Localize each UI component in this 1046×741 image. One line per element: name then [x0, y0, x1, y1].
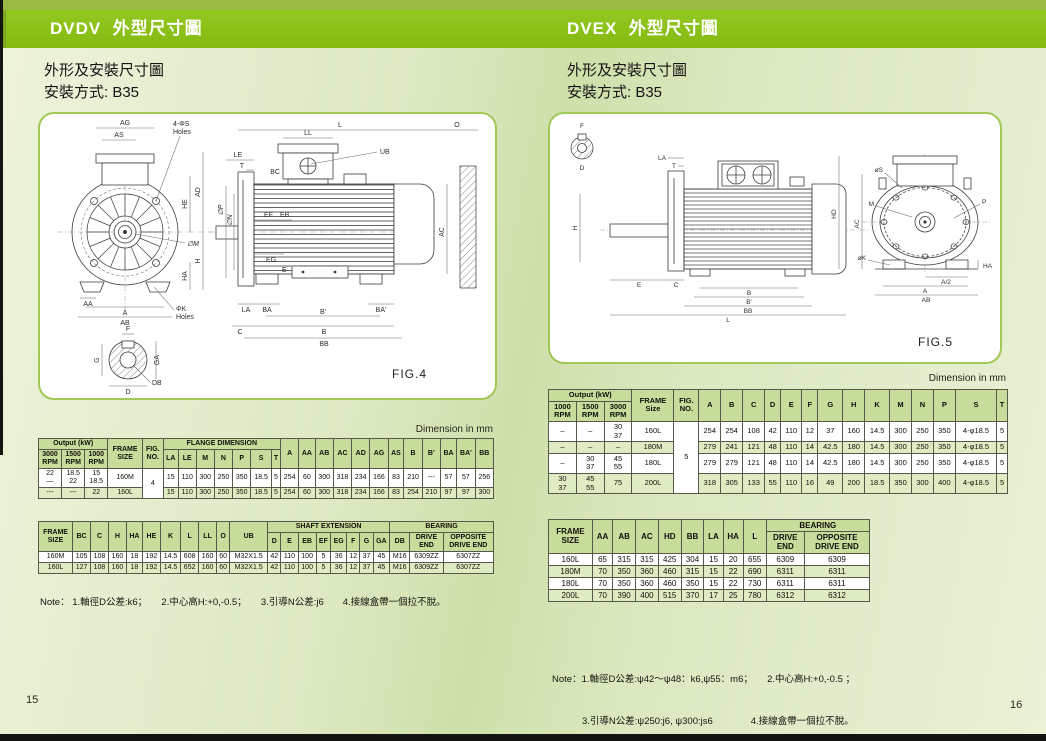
- dim-label-he: HE: [182, 199, 189, 209]
- table-cell: 55: [765, 474, 781, 494]
- table-cell: 160L: [549, 553, 593, 565]
- table-cell: 300: [315, 488, 333, 499]
- table-cell: 17: [704, 590, 723, 602]
- column-header: 1000 RPM: [549, 401, 577, 421]
- table-cell: 608: [181, 552, 199, 563]
- motor-drawing-fig4: AG AS 4-ΦS Holes HE AD ∅M HA H AA A: [40, 114, 495, 398]
- table-cell: 108: [743, 421, 765, 441]
- dim-label-l: L: [338, 122, 342, 129]
- table-cell: 5: [997, 442, 1008, 454]
- column-header: G: [818, 390, 843, 422]
- table-cell: 234: [352, 488, 370, 499]
- table-cell: –: [576, 421, 604, 441]
- table-cell: 180: [843, 442, 865, 454]
- column-header: AC: [333, 439, 351, 469]
- column-header: FRAME SIZE: [108, 439, 143, 469]
- table-cell: 30 37: [549, 474, 577, 494]
- dim-label-d: D: [125, 389, 130, 396]
- table-cell: 57: [440, 469, 456, 488]
- column-header: A: [281, 439, 299, 469]
- table-cell: 300: [890, 453, 912, 473]
- table-cell: 121: [743, 442, 765, 454]
- column-header: 1000 RPM: [85, 450, 108, 469]
- column-header: OPPOSITE DRIVE END: [804, 532, 869, 553]
- table-cell: 254: [699, 421, 721, 441]
- table-cell: 254: [404, 488, 422, 499]
- table-cell: 110: [781, 453, 802, 473]
- table-cell: 110: [781, 421, 802, 441]
- table-cell: 60: [217, 563, 230, 574]
- column-header: Output (kW): [549, 390, 632, 402]
- table-cell: 105: [73, 552, 91, 563]
- table-cell: 200L: [632, 474, 674, 494]
- table-cell: 108: [91, 552, 109, 563]
- column-header: GA: [373, 533, 389, 552]
- column-header: H: [843, 390, 865, 422]
- table-cell: M32X1.5: [230, 563, 268, 574]
- table-cell: 12: [347, 552, 360, 563]
- dim-label-ga: GA: [154, 355, 161, 365]
- column-header: FRAME Size: [632, 390, 674, 422]
- table-cell: 70: [592, 590, 612, 602]
- table-cell: 12: [347, 563, 360, 574]
- column-header: FIG. NO.: [674, 390, 699, 422]
- table-cell: 4-φ18.5: [955, 421, 996, 441]
- table-cell: 350: [613, 577, 636, 589]
- footnote-right: Note：1.軸徑D公差:ψ42～ψ48：k6,ψ55：m6； 2.中心高H:+…: [552, 644, 855, 741]
- table-row: –30 3745 55180L279279121481101442.518014…: [549, 453, 1008, 473]
- column-header: D: [268, 533, 281, 552]
- column-header: T: [271, 450, 280, 469]
- column-header: M: [196, 450, 214, 469]
- table-cell: 160: [843, 421, 865, 441]
- side-foot-left: [690, 269, 710, 276]
- table-cell: 42: [765, 421, 781, 441]
- table-cell: 15: [163, 488, 178, 499]
- column-header: AB: [315, 439, 333, 469]
- column-header: HE: [142, 522, 160, 552]
- table-cell: 6312: [766, 590, 804, 602]
- dim-label-t: T: [240, 163, 245, 170]
- table-cell: 655: [743, 553, 766, 565]
- column-header: BA: [440, 439, 456, 469]
- book-edge-bottom: [0, 734, 1046, 741]
- column-header: EF: [316, 533, 331, 552]
- table-cell: 14: [802, 453, 818, 473]
- subtitle-left-line2: 安裝方式: B35: [44, 82, 164, 104]
- table-cell: 30 37: [604, 421, 632, 441]
- dim-label-c: C: [674, 282, 679, 289]
- table-cell: 304: [681, 553, 704, 565]
- table-cell: 305: [721, 474, 743, 494]
- dim-label-f: F: [126, 326, 130, 333]
- side-view: [210, 144, 476, 288]
- table-header-row: FRAME SIZEAAABACHDBBLAHALBEARING: [549, 520, 870, 532]
- dim-label-a2: A/2: [941, 279, 951, 286]
- dim-label-p: ∅P: [218, 204, 225, 215]
- front-view: [58, 154, 212, 310]
- column-header: HA: [723, 520, 743, 554]
- table-cell: 254: [281, 488, 299, 499]
- dim-label-ac: AC: [439, 227, 446, 237]
- table-cell: 12: [802, 421, 818, 441]
- table-cell: 300: [890, 442, 912, 454]
- table-cell: ---: [39, 488, 62, 499]
- table-cell: 250: [214, 469, 232, 488]
- table-cell: ---: [422, 469, 440, 488]
- table-cell: 42.5: [818, 453, 843, 473]
- table-cell: 350: [933, 442, 955, 454]
- motor-drawing-fig5: F D H: [550, 114, 1000, 362]
- table-cell: 315: [613, 553, 636, 565]
- table-cell: 315: [681, 565, 704, 577]
- table-cell: 180L: [549, 577, 593, 589]
- side-foot-right: [360, 274, 382, 284]
- table-cell: 49: [818, 474, 843, 494]
- dim-label-b2: B': [746, 299, 752, 306]
- dim-label-hd: HD: [831, 209, 838, 219]
- table-cell: ---: [62, 488, 85, 499]
- foot-left: [80, 282, 104, 292]
- table-header-row: FRAME SIZEBCCHHAHEKLLLOUBSHAFT EXTENSION…: [39, 522, 494, 533]
- column-header: G: [360, 533, 373, 552]
- table-row: 160M1051081601819214.560816060M32X1.5421…: [39, 552, 494, 563]
- table-cell: 4-φ18.5: [955, 453, 996, 473]
- dim-label-f-small: F: [580, 123, 584, 130]
- table-cell: 6309ZZ: [410, 563, 443, 574]
- table-cell: 318: [333, 488, 351, 499]
- table-cell: 250: [214, 488, 232, 499]
- rear-box-cap: [893, 156, 957, 164]
- table-cell: 180M: [549, 565, 593, 577]
- table-cell: –: [549, 442, 577, 454]
- page-number-left: 15: [26, 694, 38, 706]
- subtitle-right-line1: 外形及安裝尺寸圖: [567, 60, 687, 82]
- dimension-unit-note-right: Dimension in mm: [540, 373, 1006, 384]
- page-number-right: 16: [1010, 699, 1022, 711]
- table-cell: 25: [723, 590, 743, 602]
- dim-label-t: T: [672, 163, 676, 170]
- column-header: E: [781, 390, 802, 422]
- dimension-unit-note-left: Dimension in mm: [38, 424, 493, 435]
- dim-label-eb: EB: [280, 212, 290, 219]
- column-header: LE: [178, 450, 196, 469]
- flange-dimension-table: Output (kW)FRAME SIZEFIG. NO.FLANGE DIME…: [38, 438, 494, 499]
- column-header: AC: [636, 520, 659, 554]
- column-header: S: [251, 450, 272, 469]
- column-header: HD: [658, 520, 681, 554]
- column-header: FRAME SIZE: [39, 522, 73, 552]
- table-cell: 350: [613, 565, 636, 577]
- table-cell: 97: [440, 488, 456, 499]
- column-header: AG: [370, 439, 388, 469]
- rear-terminal-box: [897, 164, 953, 186]
- table-cell: 192: [142, 552, 160, 563]
- table-cell: 70: [592, 565, 612, 577]
- figure-caption-fig5: FIG.5: [918, 335, 953, 349]
- dim-label-ac: AC: [854, 219, 861, 228]
- table-cell: 690: [743, 565, 766, 577]
- table-cell: 42: [268, 563, 281, 574]
- column-header: LA: [163, 450, 178, 469]
- column-header: BEARING: [390, 522, 494, 533]
- column-header: EB: [298, 533, 316, 552]
- table-cell: 5: [316, 563, 331, 574]
- table-cell: 5: [997, 474, 1008, 494]
- dim-label-g: G: [94, 357, 101, 362]
- table-cell: 300: [196, 469, 214, 488]
- table-cell: 16: [802, 474, 818, 494]
- table-cell: 250: [912, 442, 934, 454]
- table-cell: 22: [723, 565, 743, 577]
- table-cell: 350: [933, 421, 955, 441]
- table-cell: 6311: [804, 565, 869, 577]
- table-cell: 110: [178, 469, 196, 488]
- column-header: AS: [388, 439, 404, 469]
- table-cell: 45: [373, 552, 389, 563]
- table-cell: 160: [108, 552, 126, 563]
- motor-body: [684, 189, 812, 269]
- table-cell: 14.5: [160, 552, 180, 563]
- table-cell: 42: [268, 552, 281, 563]
- table-cell: 300: [912, 474, 934, 494]
- column-header: BB: [681, 520, 704, 554]
- column-header: M: [890, 390, 912, 422]
- dim-label-e: E: [637, 282, 642, 289]
- figure-panel-dvdv: AG AS 4-ΦS Holes HE AD ∅M HA H AA A: [38, 112, 497, 400]
- dim-label-k: øK: [858, 255, 867, 262]
- column-header: OPPOSITE DRIVE END: [443, 533, 493, 552]
- table-cell: 6309ZZ: [410, 552, 443, 563]
- column-header: BC: [73, 522, 91, 552]
- column-header: EG: [331, 533, 347, 552]
- drain-box: [292, 266, 348, 278]
- table-cell: 110: [781, 474, 802, 494]
- table-cell: 350: [233, 488, 251, 499]
- dim-label-ba: BA: [262, 307, 272, 314]
- lifting-lug: [344, 174, 366, 184]
- figure-panel-dvex: F D H: [548, 112, 1002, 364]
- table-cell: 18: [126, 552, 142, 563]
- column-header: B: [721, 390, 743, 422]
- dim-label-ub: UB: [380, 149, 390, 156]
- lifting-lug: [790, 177, 804, 186]
- subtitle-left: 外形及安裝尺寸圖 安裝方式: B35: [44, 60, 164, 104]
- foot-right: [146, 282, 170, 292]
- column-header: LL: [199, 522, 217, 552]
- table-cell: 48: [765, 453, 781, 473]
- table-cell: 350: [933, 453, 955, 473]
- flange-dimension-table-wrap: Output (kW)FRAME SIZEFIG. NO.FLANGE DIME…: [38, 438, 494, 499]
- column-header: FRAME SIZE: [549, 520, 593, 554]
- dim-label-e: E: [282, 267, 287, 274]
- dim-label-a: A: [923, 288, 928, 295]
- table-cell: 6307ZZ: [443, 552, 493, 563]
- table-cell: 160: [199, 563, 217, 574]
- fan-cover: [394, 184, 434, 264]
- fan-cover: [812, 184, 846, 274]
- column-header: FLANGE DIMENSION: [163, 439, 280, 450]
- side-foot-left: [256, 274, 278, 284]
- table-cell: –: [549, 421, 577, 441]
- table-cell: 14.5: [865, 421, 890, 441]
- dim-label-ab: AB: [922, 297, 931, 304]
- dim-label-s-holes-1: 4-ΦS: [173, 121, 190, 128]
- table-cell: 350: [890, 474, 912, 494]
- table-cell: 30 37: [576, 453, 604, 473]
- table-row: 22 —18.5 2215 18.5160M41511030025035018.…: [39, 469, 494, 488]
- footnote-left: Note： 1.軸徑D公差:k6； 2.中心高H:+0,-0.5； 3.引導N公…: [40, 594, 446, 608]
- column-header: 1500 RPM: [62, 450, 85, 469]
- table-cell: 22 —: [39, 469, 62, 488]
- table-cell: M16: [390, 563, 410, 574]
- subtitle-right-line2: 安裝方式: B35: [567, 82, 687, 104]
- table-cell: 65: [592, 553, 612, 565]
- table-cell: 15: [163, 469, 178, 488]
- table-cell: 250: [912, 453, 934, 473]
- table-cell: 100: [298, 552, 316, 563]
- table-cell: 83: [388, 488, 404, 499]
- column-header: C: [91, 522, 109, 552]
- table-cell: 318: [333, 469, 351, 488]
- table-cell: 37: [360, 552, 373, 563]
- column-header: D: [765, 390, 781, 422]
- dim-label-bb: BB: [319, 341, 329, 348]
- dvex-bearing-table: FRAME SIZEAAABACHDBBLAHALBEARINGDRIVE EN…: [548, 519, 870, 602]
- table-cell: 279: [699, 442, 721, 454]
- table-cell: 279: [721, 453, 743, 473]
- table-cell: M32X1.5: [230, 552, 268, 563]
- catalog-spread: DVDV 外型尺寸圖 DVEX 外型尺寸圖 外形及安裝尺寸圖 安裝方式: B35…: [0, 0, 1046, 741]
- table-header-row: Output (kW)FRAME SIZEFIG. NO.FLANGE DIME…: [39, 439, 494, 450]
- dim-label-s: øS: [875, 167, 884, 174]
- table-cell: 180L: [632, 453, 674, 473]
- table-cell: 15 18.5: [85, 469, 108, 488]
- dim-label-n: ∅N: [227, 213, 234, 225]
- dim-label-as: AS: [114, 132, 124, 139]
- table-cell: 5: [997, 421, 1008, 441]
- column-header: BB: [475, 439, 493, 469]
- table-cell: 780: [743, 590, 766, 602]
- table-cell: 5: [271, 469, 280, 488]
- table-cell: 166: [370, 488, 388, 499]
- dim-label-la: LA: [242, 307, 251, 314]
- side-foot-right: [785, 269, 805, 276]
- table-cell: 5: [271, 488, 280, 499]
- table-cell: 22: [85, 488, 108, 499]
- table-cell: 45 55: [576, 474, 604, 494]
- table-cell: 36: [331, 552, 347, 563]
- dim-label-le: LE: [234, 152, 243, 159]
- rear-foot-right: [946, 260, 968, 269]
- table-row: 200L70390400515370172578063126312: [549, 590, 870, 602]
- banner-dvdv: DVDV 外型尺寸圖: [0, 10, 529, 48]
- table-cell: 60: [299, 488, 315, 499]
- dim-label-a: A: [123, 310, 128, 317]
- table-cell: 110: [781, 442, 802, 454]
- table-cell: 100: [298, 563, 316, 574]
- dim-label-o: O: [454, 122, 460, 129]
- table-row: 160L1271081601819214.565216060M32X1.5421…: [39, 563, 494, 574]
- mounting-wall: [460, 166, 476, 288]
- table-cell: 180: [843, 453, 865, 473]
- column-header: DRIVE END: [766, 532, 804, 553]
- table-cell: 127: [73, 563, 91, 574]
- table-cell: 60: [217, 552, 230, 563]
- dim-label-ag: AG: [120, 120, 130, 127]
- dvex-dimension-table-wrap: Output (kW)FRAME SizeFIG. NO.ABCDEFGHKMN…: [548, 389, 1008, 494]
- table-cell: 15: [704, 577, 723, 589]
- column-header: AA: [592, 520, 612, 554]
- column-header: K: [160, 522, 180, 552]
- table-cell: 57: [457, 469, 475, 488]
- table-cell: 6311: [804, 577, 869, 589]
- column-header: DRIVE END: [410, 533, 443, 552]
- table-cell: 652: [181, 563, 199, 574]
- table-cell: 18.5 22: [62, 469, 85, 488]
- table-row: 180M70350360460315152269063116311: [549, 565, 870, 577]
- dim-label-db: DB: [152, 380, 162, 387]
- shaft: [610, 224, 668, 237]
- table-cell: 6307ZZ: [443, 563, 493, 574]
- table-cell: 350: [681, 577, 704, 589]
- table-cell: 279: [699, 453, 721, 473]
- column-header: BEARING: [766, 520, 869, 532]
- footnote-right-line2: 3.引導N公差:ψ250:j6, ψ300:js6 4.接線盒帶一個拉不脫。: [552, 715, 855, 729]
- column-header: E: [281, 533, 298, 552]
- dvex-bearing-table-wrap: FRAME SIZEAAABACHDBBLAHALBEARINGDRIVE EN…: [548, 519, 870, 602]
- table-cell: 300: [315, 469, 333, 488]
- dim-label-bb: BB: [744, 308, 753, 315]
- table-cell: 6309: [804, 553, 869, 565]
- table-cell: 360: [636, 577, 659, 589]
- table-cell: 18.5: [865, 474, 890, 494]
- table-cell: 14: [802, 442, 818, 454]
- rear-foot-left: [883, 260, 905, 269]
- dim-label-k-holes-1: ΦK: [176, 306, 187, 313]
- dim-label-h: H: [572, 225, 579, 230]
- banner-dvex: DVEX 外型尺寸圖: [523, 10, 1046, 48]
- table-cell: 15: [704, 565, 723, 577]
- table-header-row: Output (kW)FRAME SizeFIG. NO.ABCDEFGHKMN…: [549, 390, 1008, 402]
- banner-dvdv-title: DVDV 外型尺寸圖: [6, 10, 529, 48]
- table-cell: 5: [997, 453, 1008, 473]
- column-header: AD: [352, 439, 370, 469]
- column-header: B: [404, 439, 422, 469]
- column-header: P: [933, 390, 955, 422]
- table-cell: 6309: [766, 553, 804, 565]
- table-row: 180L70350360460350152273063116311: [549, 577, 870, 589]
- column-header: S: [955, 390, 996, 422]
- table-cell: 400: [636, 590, 659, 602]
- table-cell: 300: [890, 421, 912, 441]
- table-cell: –: [604, 442, 632, 454]
- banner-dvex-title: DVEX 外型尺寸圖: [523, 10, 1046, 48]
- dim-label-ha: HA: [182, 271, 189, 281]
- table-cell: 250: [912, 421, 934, 441]
- table-cell: 5: [316, 552, 331, 563]
- table-cell: 83: [388, 469, 404, 488]
- column-header: T: [997, 390, 1008, 422]
- table-cell: 160L: [108, 488, 143, 499]
- table-cell: 241: [721, 442, 743, 454]
- table-cell: 254: [721, 421, 743, 441]
- dim-label-b2: B': [320, 309, 326, 316]
- column-header: C: [743, 390, 765, 422]
- table-cell: 350: [233, 469, 251, 488]
- column-header: SHAFT EXTENSION: [268, 522, 390, 533]
- column-header: N: [912, 390, 934, 422]
